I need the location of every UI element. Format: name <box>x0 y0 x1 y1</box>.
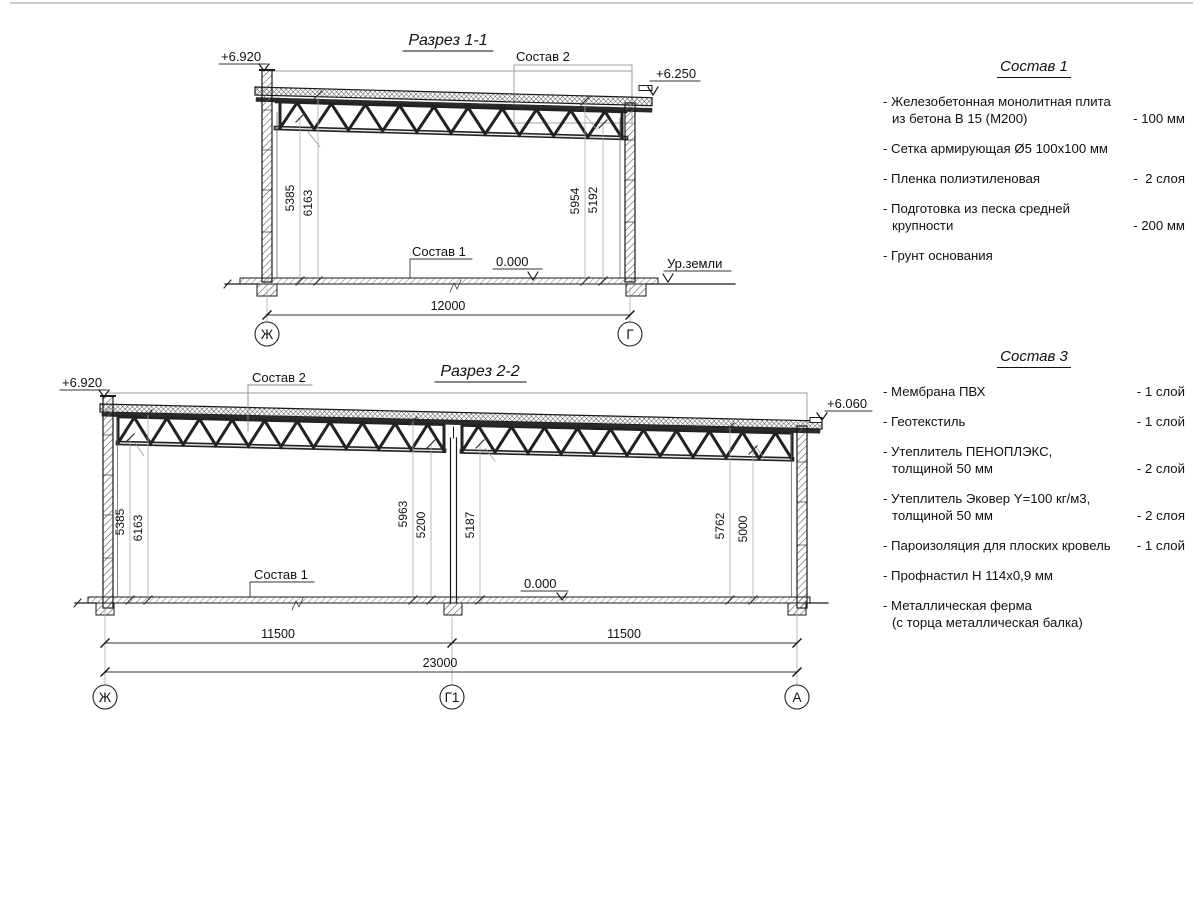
axis-zh: Ж <box>99 690 112 705</box>
elevation-left: +6.920 <box>221 49 261 64</box>
item-value: - 1 слой <box>1137 383 1185 400</box>
dim-5963: 5963 <box>396 500 410 527</box>
legend-3-item: - Пароизоляция для плоских кровель - 1 с… <box>883 537 1185 554</box>
section-1-1: Разрез 1-1 Состав 2 <box>219 32 735 346</box>
legend-3-title: Состав 3 <box>883 348 1185 365</box>
zero-level-label: 0.000 <box>524 576 557 591</box>
dim-6163: 6163 <box>131 514 145 541</box>
axis-a: А <box>792 690 801 705</box>
item-value: - 2 слоя <box>1133 170 1185 187</box>
dim-5000: 5000 <box>736 515 750 542</box>
legend-3-item: - Профнастил Н 114х0,9 мм <box>883 567 1185 584</box>
wall-left <box>262 70 272 282</box>
ground-level-label: Ур.земли <box>667 256 722 271</box>
item-value: - 100 мм <box>1133 110 1185 127</box>
dim-5187: 5187 <box>463 511 477 538</box>
wall-right <box>797 426 807 608</box>
item-value: - 1 слой <box>1137 413 1185 430</box>
truss-right <box>462 426 792 460</box>
sostav1-label: Состав 1 <box>412 244 466 259</box>
dimension-12000: 12000 <box>263 288 634 322</box>
section-1-1-title: Разрез 1-1 <box>408 32 487 49</box>
legend-3-item: - Утеплитель ПЕНОПЛЭКС, толщиной 50 мм -… <box>883 443 1185 477</box>
dim-6163: 6163 <box>301 189 315 216</box>
section-2-2: Разрез 2-2 <box>60 363 872 709</box>
dim-5192: 5192 <box>586 186 600 213</box>
item-value: - 2 слоя <box>1137 507 1185 524</box>
wall-left <box>103 396 113 608</box>
axis-g1: Г1 <box>445 690 460 705</box>
legend-3-item: - Утеплитель Эковер Y=100 кг/м3, толщино… <box>883 490 1185 524</box>
axis-zh: Ж <box>261 327 274 342</box>
floor-slab <box>88 597 810 603</box>
section-2-2-title: Разрез 2-2 <box>440 363 519 380</box>
dim-5200: 5200 <box>414 511 428 538</box>
dimension-rows: 11500 11500 23000 <box>101 610 801 685</box>
legend-3-item: - Мембрана ПВХ - 1 слой <box>883 383 1185 400</box>
item-value: - 200 мм <box>1133 217 1185 234</box>
sostav1-label: Состав 1 <box>254 567 308 582</box>
drawing-page: Разрез 1-1 Состав 2 <box>0 0 1200 900</box>
legend-1-title: Состав 1 <box>883 58 1185 75</box>
dim-5762: 5762 <box>713 512 727 539</box>
footing-middle <box>444 603 462 615</box>
legend-1-item: - Подготовка из песка средней крупности … <box>883 200 1185 234</box>
dim-11500-left: 11500 <box>261 627 295 641</box>
elevation-left: +6.920 <box>62 375 102 390</box>
zero-level-label: 0.000 <box>496 254 529 269</box>
legend-sostav-1: Состав 1 - Железобетонная монолитная пли… <box>883 58 1185 277</box>
legend-sostav-3: Состав 3 - Мембрана ПВХ - 1 слой - Геоте… <box>883 348 1185 644</box>
axis-g: Г <box>626 327 634 342</box>
elevation-right: +6.060 <box>827 396 867 411</box>
dim-11500-right: 11500 <box>607 627 641 641</box>
sostav2-label: Состав 2 <box>252 370 306 385</box>
dim-5385: 5385 <box>113 508 127 535</box>
item-value: - 1 слой <box>1137 537 1185 554</box>
legend-1-item: - Сетка армирующая Ø5 100х100 мм <box>883 140 1185 157</box>
legend-3-item: - Геотекстиль - 1 слой <box>883 413 1185 430</box>
dim-5385: 5385 <box>283 184 297 211</box>
wall-right <box>625 103 635 282</box>
item-value: - 2 слой <box>1137 460 1185 477</box>
vertical-dimensions <box>130 414 753 600</box>
legend-1-item: - Железобетонная монолитная плита из бет… <box>883 93 1185 127</box>
dim-12000: 12000 <box>431 299 466 313</box>
dim-5954: 5954 <box>568 187 582 214</box>
truss-left <box>118 417 444 451</box>
legend-1-item: - Грунт основания <box>883 247 1185 264</box>
elevation-right: +6.250 <box>656 66 696 81</box>
footing-right <box>626 284 646 296</box>
sostav2-label: Состав 2 <box>516 49 570 64</box>
legend-3-item: - Металлическая ферма (с торца металличе… <box>883 597 1185 631</box>
dim-23000: 23000 <box>423 656 458 670</box>
legend-1-item: - Пленка полиэтиленовая - 2 слоя <box>883 170 1185 187</box>
axis-markers <box>255 322 642 346</box>
